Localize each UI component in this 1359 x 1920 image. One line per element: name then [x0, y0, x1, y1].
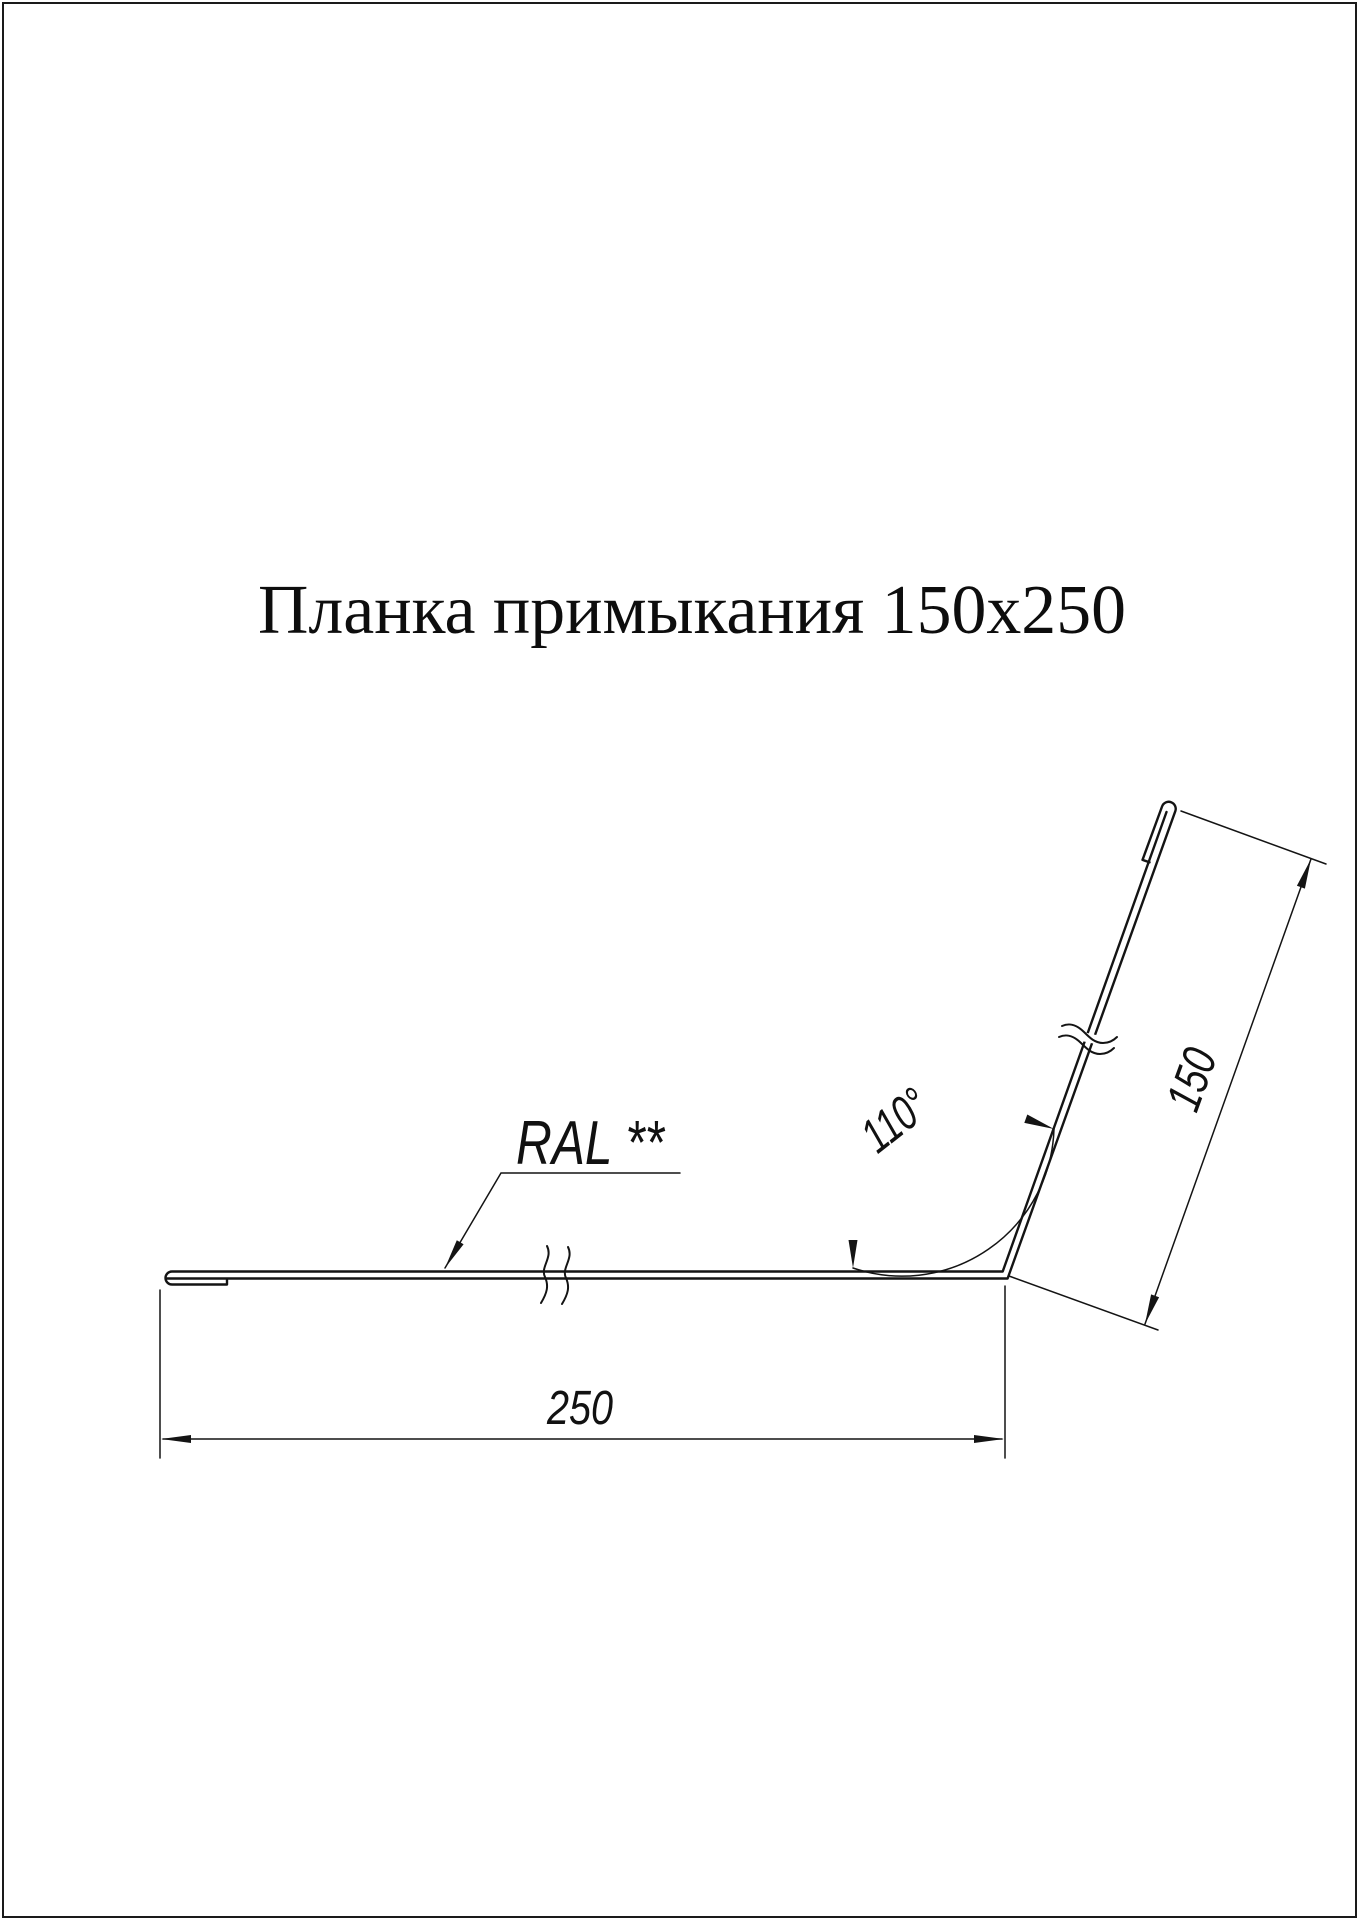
drawing-title: Планка примыкания 150x250 — [258, 572, 1126, 649]
arrowhead-250-right — [974, 1435, 1004, 1443]
flashing-profile-bottom-outline — [167, 802, 1176, 1279]
break-mark-horizontal-left — [541, 1246, 549, 1303]
technical-drawing: Планка примыкания 150x250 250 150 110° — [0, 0, 1359, 1920]
material-label: RAL ** — [516, 1109, 665, 1178]
arrowhead-angle-top — [1024, 1115, 1054, 1130]
extension-line-150-bottom — [1009, 1276, 1158, 1330]
arrowhead-material-leader — [445, 1240, 464, 1268]
extension-line-150-top — [1181, 811, 1326, 864]
arrowhead-150-top — [1297, 859, 1311, 889]
arrowhead-150-bottom — [1145, 1294, 1159, 1324]
arrowhead-250-left — [161, 1435, 191, 1443]
height-dimension-label: 150 — [1157, 1041, 1228, 1118]
arrowhead-angle-bottom — [849, 1240, 858, 1268]
break-mark-horizontal-right — [562, 1247, 570, 1304]
material-leader-line — [445, 1173, 680, 1268]
drawing-sheet: Планка примыкания 150x250 250 150 110° — [0, 0, 1359, 1920]
flashing-profile-top-outline — [166, 812, 1167, 1285]
angle-dimension-label: 110° — [852, 1078, 940, 1163]
width-dimension-label: 250 — [546, 1382, 613, 1435]
